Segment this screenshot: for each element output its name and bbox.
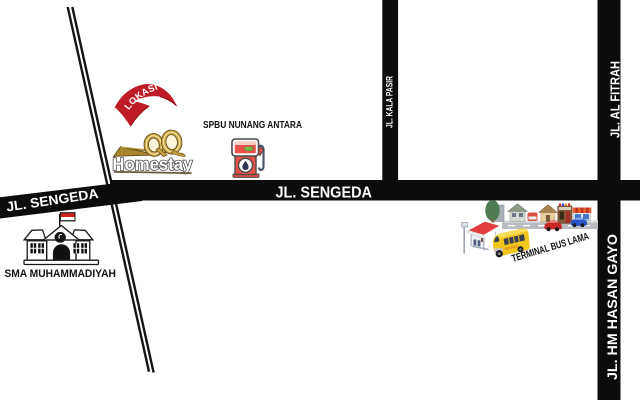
svg-text:JL. KALA PASIR: JL. KALA PASIR	[385, 76, 396, 128]
svg-text:JL. HM HASAN GAYO: JL. HM HASAN GAYO	[605, 234, 620, 380]
svg-text:Homestay: Homestay	[112, 154, 192, 174]
svg-text:SMA MUHAMMADIYAH: SMA MUHAMMADIYAH	[4, 268, 116, 280]
svg-text:JL. AL FITRAH: JL. AL FITRAH	[607, 61, 622, 138]
svg-text:SPBU NUNANG ANTARA: SPBU NUNANG ANTARA	[203, 119, 302, 131]
svg-text:JL. SENGEDA: JL. SENGEDA	[276, 184, 373, 201]
